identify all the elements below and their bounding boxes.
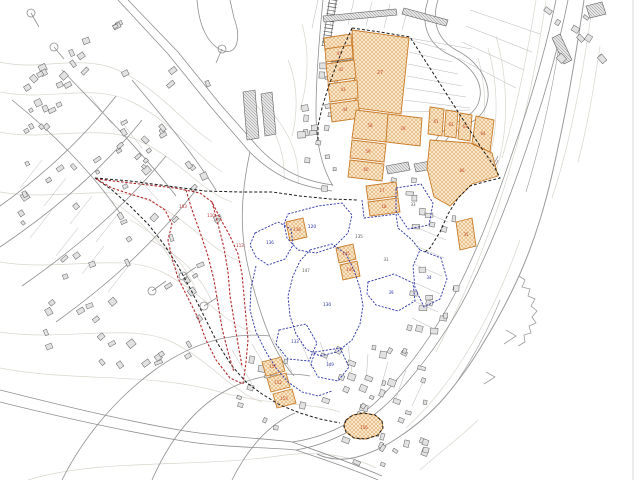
- building-footprint: [18, 210, 25, 217]
- building-footprint: [76, 307, 85, 315]
- building-footprint: [45, 343, 53, 350]
- building-footprint: [34, 98, 43, 107]
- culdesac-stub: [152, 281, 166, 291]
- building-footprint: [343, 386, 350, 393]
- building-footprint: [166, 80, 175, 88]
- building-footprint: [126, 236, 132, 242]
- building-footprint: [429, 222, 435, 227]
- building-footprint: [121, 120, 128, 126]
- building-footprint: [56, 165, 64, 172]
- parcel-label: 42: [338, 67, 344, 72]
- building-footprint: [430, 328, 438, 334]
- building-footprint: [64, 81, 72, 88]
- building-footprint: [341, 436, 350, 443]
- building-footprint: [425, 213, 433, 218]
- building-footprint: [441, 226, 448, 232]
- parcel-label: 39: [388, 290, 394, 295]
- building-footprint: [262, 418, 267, 424]
- parcel-label: 135: [355, 234, 363, 239]
- parcel-label: 103: [179, 204, 187, 209]
- building-footprint: [108, 297, 117, 306]
- building-footprint: [419, 306, 427, 311]
- parcel-130: [288, 244, 363, 356]
- building-footprint: [196, 314, 203, 321]
- building-footprint: [407, 325, 413, 331]
- buildings: [18, 7, 607, 467]
- building-footprint: [45, 307, 53, 316]
- building-footprint: [305, 158, 310, 163]
- building-footprint: [196, 262, 204, 268]
- parcel-label: 58: [367, 123, 373, 128]
- building-footprint: [164, 282, 172, 289]
- building-footprint: [410, 291, 418, 296]
- building-footprint: [60, 255, 68, 262]
- map-viewport: 2741424344582859606162636466171813814514…: [0, 0, 640, 480]
- parcel-label: 149: [326, 362, 334, 367]
- culdesac-stub: [31, 13, 39, 27]
- building-footprint: [347, 373, 356, 382]
- parcel-label: 145: [342, 251, 350, 256]
- culdesac-stub: [54, 47, 64, 59]
- parcel-label: 28: [400, 126, 406, 131]
- parcel-label: 17: [379, 188, 385, 193]
- parcel-label: 138: [293, 227, 301, 232]
- building-footprint: [70, 163, 77, 170]
- building-footprint: [93, 156, 101, 163]
- building-footprint: [29, 108, 34, 113]
- apartment-slab-4: [261, 92, 276, 136]
- building-footprint: [411, 178, 416, 183]
- building-footprint: [392, 448, 398, 453]
- building-footprint: [59, 71, 68, 80]
- parcel-label: 66: [459, 168, 465, 173]
- building-footprint: [150, 213, 159, 222]
- building-footprint: [143, 158, 149, 164]
- building-footprint: [120, 219, 127, 224]
- building-footprint: [23, 84, 31, 92]
- building-footprint: [454, 286, 460, 292]
- building-footprint: [29, 74, 38, 83]
- building-footprint: [419, 267, 426, 273]
- building-footprint: [116, 361, 124, 369]
- building-footprint: [398, 417, 405, 423]
- building-footprint: [21, 221, 26, 226]
- parcel-label: 146: [346, 267, 354, 272]
- building-footprint: [89, 261, 96, 268]
- building-footprint: [92, 316, 99, 323]
- building-footprint: [273, 426, 278, 431]
- building-footprint: [68, 49, 74, 56]
- building-footprint: [135, 153, 142, 160]
- building-footprint: [309, 130, 317, 135]
- parcel-label: 31: [383, 257, 389, 262]
- building-footprint: [369, 395, 374, 400]
- building-footprint: [379, 389, 386, 397]
- building-footprint: [584, 34, 592, 43]
- parcel-label: 151: [269, 364, 277, 369]
- building-footprint: [142, 359, 151, 367]
- parcel-label: 64: [480, 131, 486, 136]
- building-footprint: [571, 25, 580, 33]
- building-footprint: [301, 104, 308, 111]
- building-footprint: [81, 67, 89, 75]
- parcel-label: 61: [433, 119, 439, 124]
- building-footprint: [73, 252, 81, 260]
- map-canvas: 2741424344582859606162636466171813814514…: [0, 0, 640, 480]
- building-footprint: [82, 37, 90, 45]
- building-footprint: [412, 195, 417, 201]
- building-footprint: [24, 128, 30, 134]
- building-footprint: [359, 384, 368, 393]
- parcel-label: 136: [266, 240, 274, 245]
- parcel-label: 130: [323, 302, 332, 308]
- building-footprint: [325, 155, 330, 159]
- building-footprint: [146, 148, 152, 154]
- building-footprint: [39, 124, 45, 130]
- building-footprint: [42, 105, 49, 112]
- building-footprint: [108, 340, 116, 347]
- parcel-label: 110: [207, 213, 215, 218]
- building-footprint: [56, 81, 63, 88]
- building-footprint: [380, 462, 385, 467]
- parcel-label: 43: [340, 87, 346, 92]
- building-footprint: [423, 447, 430, 453]
- building-footprint: [322, 186, 328, 192]
- building-footprint: [184, 353, 191, 360]
- boundary-blue-zone-link-west: [250, 266, 332, 396]
- building-footprint: [126, 339, 136, 349]
- building-footprint: [122, 184, 128, 190]
- building-footprint: [70, 60, 77, 68]
- parcel-label: 35: [463, 232, 469, 237]
- building-footprint: [322, 397, 330, 404]
- parcel-label: 147: [302, 268, 310, 273]
- building-footprint: [380, 433, 385, 440]
- building-footprint: [315, 140, 321, 145]
- building-footprint: [97, 333, 105, 341]
- building-footprint: [393, 398, 401, 405]
- parcel-label: 152: [274, 380, 282, 385]
- building-footprint: [421, 378, 426, 384]
- building-footprint: [45, 177, 51, 183]
- parcel-label: 156: [360, 425, 368, 430]
- building-footprint: [443, 313, 447, 318]
- building-footprint: [298, 131, 306, 138]
- building-footprint: [99, 359, 106, 366]
- building-footprint: [124, 259, 130, 267]
- parcel-label: 153: [280, 396, 288, 401]
- building-footprint: [419, 208, 425, 215]
- building-footprint: [25, 161, 30, 166]
- building-footprint: [405, 411, 411, 416]
- parcel-label: 120: [308, 224, 317, 230]
- lot-lines: [20, 0, 540, 406]
- building-footprint: [237, 402, 243, 407]
- parcel-label: 33: [410, 202, 416, 207]
- boundary-red-zone-outline: [96, 179, 248, 384]
- building-footprint: [423, 400, 427, 405]
- building-footprint: [48, 107, 56, 114]
- building-footprint: [86, 303, 94, 309]
- building-footprint: [48, 299, 55, 306]
- building-footprint: [117, 212, 124, 220]
- building-footprint: [186, 341, 192, 348]
- apartment-slab-10: [586, 2, 606, 18]
- parcel-label: 60: [363, 167, 369, 172]
- building-footprint: [387, 348, 393, 355]
- building-footprint: [299, 402, 306, 410]
- building-footprint: [417, 365, 425, 370]
- building-footprint: [379, 351, 386, 359]
- building-footprint: [284, 359, 288, 364]
- building-footprint: [190, 184, 197, 191]
- parcel-label: 41: [336, 51, 342, 56]
- building-footprint: [56, 102, 62, 108]
- building-footprint: [372, 345, 376, 350]
- building-footprint: [303, 115, 308, 122]
- building-footprint: [452, 215, 456, 221]
- building-footprint: [324, 125, 329, 131]
- building-footprint: [387, 378, 396, 387]
- culdesac-stub: [204, 297, 218, 306]
- parcel-label: 18: [381, 204, 387, 209]
- parcel-label: 63: [462, 124, 468, 129]
- building-footprint: [168, 66, 177, 74]
- building-footprint: [72, 203, 79, 210]
- building-footprint: [415, 325, 423, 333]
- building-footprint: [403, 440, 409, 448]
- building-footprint: [141, 136, 149, 144]
- building-footprint: [249, 356, 255, 364]
- building-footprint: [28, 123, 34, 129]
- parcel-label: 34: [426, 275, 432, 280]
- building-footprint: [406, 192, 414, 196]
- building-footprint: [583, 15, 589, 21]
- building-footprint: [236, 395, 241, 400]
- apartment-slab-6: [386, 162, 410, 174]
- parcel-label: 44: [342, 107, 348, 112]
- parcel-label: 62: [448, 122, 454, 127]
- building-footprint: [319, 72, 325, 79]
- building-footprint: [426, 295, 433, 300]
- building-footprint: [555, 19, 561, 26]
- building-footprint: [121, 70, 129, 77]
- building-footprint: [77, 52, 85, 60]
- building-footprint: [333, 168, 336, 171]
- parcel-label: 59: [365, 149, 371, 154]
- building-footprint: [200, 172, 209, 181]
- parcel-label: 27: [377, 70, 383, 76]
- building-footprint: [62, 274, 68, 280]
- parcel-label: 113: [236, 243, 244, 248]
- parcel-label: 133: [291, 339, 299, 344]
